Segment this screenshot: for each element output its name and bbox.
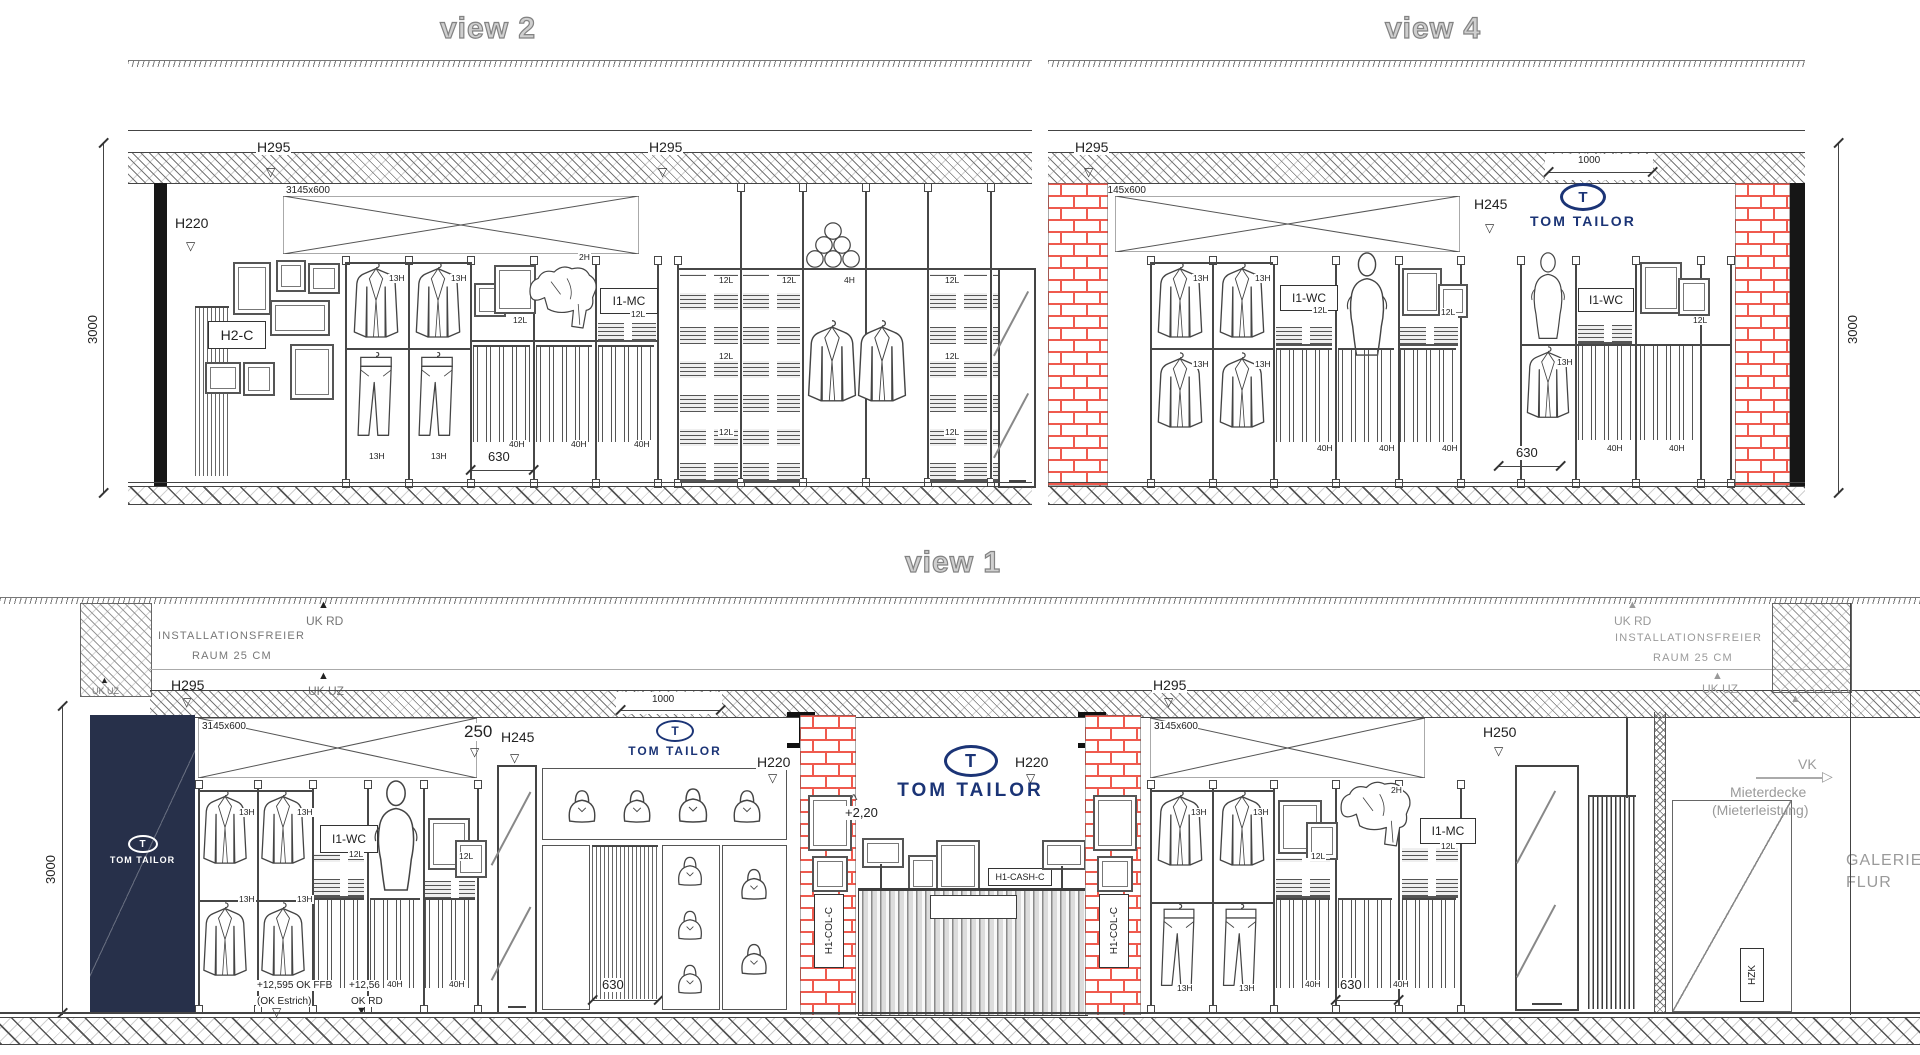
capacity-label: 40H [1441,444,1459,453]
dimension-line [1498,466,1560,467]
jacket-icon [258,790,308,868]
mannequin-icon [370,780,422,892]
triangle-marker-icon: ▽ [470,746,479,758]
annotation-uk-rd: UK RD [306,614,343,628]
jacket-icon [258,902,308,980]
picture-frame [812,856,848,892]
bag-column [722,845,787,1010]
logo-wordmark: TOM TAILOR [1530,213,1636,229]
gallery-wall-line [1850,603,1851,1015]
shelf-post [1150,258,1152,486]
mannequin-icon [1342,252,1392,357]
view4-floor-hatch [1048,486,1805,505]
shelf-post [1150,782,1152,1012]
fixture-tag: H1-CASH-C [988,868,1052,886]
folded-stacks [1402,848,1458,898]
annotation-installfree-1: INSTALLATIONSFREIER [158,630,305,643]
hanging-pants [1338,898,1392,988]
shelf-post [1730,258,1732,486]
triangle-marker-icon: ▲ [1790,694,1801,705]
handbag-icon [673,908,707,940]
logo-ellipse-t: T [656,720,694,742]
folded-stacks [314,854,364,898]
logo-ellipse-t: T [128,835,158,853]
height-label: H220 [1014,755,1049,770]
triangle-marker-icon: ▲ [1712,671,1723,682]
folded-stacks [425,878,475,900]
view4-slab-line [1048,130,1805,131]
shelf-post [477,782,479,1012]
capacity-label: 13H [1254,360,1272,369]
capacity-label: 40H [1304,980,1322,989]
panel-size-label: 3145x600 [1154,721,1198,732]
tom-tailor-logo: T TOM TAILOR [1530,183,1636,229]
handbag-icon [736,866,772,900]
rack-pole [1626,718,1628,798]
jacket-icon [200,790,250,868]
level-label-ffb: +12,595 OK FFB [256,980,333,991]
view1-floor-hatch [0,1017,1920,1045]
logo-ellipse-t: T [1560,183,1606,211]
tom-tailor-logo-white: T TOM TAILOR [100,835,185,865]
floor-line [1048,482,1805,483]
dimension-line [592,1000,658,1001]
view4-title: view 4 [1385,12,1481,46]
height-label: H245 [500,730,535,745]
picture-frame [936,840,980,892]
annotation-galerie: GALERIE [1846,852,1920,870]
jeans-icon [1158,904,1200,988]
capacity-label: 13H [1238,984,1256,993]
left-wall-hatch [80,603,152,697]
height-label: H295 [1152,678,1187,693]
hanging-pants [1402,898,1456,988]
capacity-label: 13H [1192,274,1210,283]
handbag-icon [618,787,656,823]
view1-title: view 1 [905,546,1001,580]
handbag-icon [673,785,713,823]
picture-frame [908,855,938,892]
handbag-icon [563,787,601,823]
capacity-label: 13H [1192,360,1210,369]
shelf-post [1575,258,1577,486]
gallery-door [1672,800,1792,1012]
annotation-uk-uz: UK UZ [92,686,119,697]
triangle-marker-icon: ▲ [1627,600,1638,611]
brick-wall [1048,183,1108,486]
shelf-post [367,782,369,1012]
handbag-icon [736,941,772,975]
draped-clothes-icon [1338,770,1413,855]
shelf-post [1212,258,1214,486]
dimension-label-3000: 3000 [1846,300,1860,360]
folded-stacks [1400,316,1458,346]
installation-zone-line [150,669,1850,670]
mannequin-icon [1524,252,1572,340]
view4-ceiling-hatch [1048,152,1805,184]
triangle-marker-icon: ▽ [510,752,519,764]
annotation-mieterdecke: Mieterdecke [1730,784,1806,801]
dimension-label-3000: 3000 [44,840,58,900]
capacity-label: 12L [1692,316,1708,325]
triangle-marker-icon: ▽ [1494,745,1503,757]
fixture-tag-vertical: H1-COL-C [814,894,844,968]
annotation-vk: VK [1798,756,1817,773]
jacket-icon [200,902,250,980]
dimension-label-630: 630 [1340,978,1362,992]
jacket-icon [1216,790,1268,870]
shelf-post [1335,782,1337,1012]
floor-line [0,1012,1920,1014]
annotation-installfree-1: INSTALLATIONSFREIER [1615,632,1762,645]
bag-column [662,845,720,1010]
height-label: H250 [1482,725,1517,740]
folded-stacks [1578,314,1632,344]
fixture-tag: I1-WC [1578,288,1634,312]
dimension-line [620,710,720,711]
hzk-text: HZK [1747,965,1758,985]
shelf-post [1212,782,1214,1012]
capacity-label: 13H [238,808,256,817]
hanging-pants [1578,344,1632,440]
picture-frame [1640,262,1682,314]
hanging-pants [314,898,364,988]
level-label-estrich: (OK Estrich) [256,996,312,1007]
fixture-tag-text: H1-COL-C [824,907,835,954]
capacity-label: 13H [296,808,314,817]
mirror-panel [1515,765,1579,1011]
brand-wall-panel: T TOM TAILOR [90,715,195,1013]
handbag-icon [728,787,766,823]
triangle-marker-icon: ▽ [768,772,777,784]
folded-stacks [1276,312,1332,346]
capacity-label: 12L [348,850,364,859]
capacity-label: 12L [458,852,474,861]
panel-size-label: 3145x600 [1102,185,1146,196]
capacity-label: 2H [1390,786,1403,795]
view1-panel: view 1 ▲ UK RD INSTALLATIONSFREIER RAUM … [0,540,1920,1055]
capacity-label: 13H [1252,808,1270,817]
dimension-label-1000: 1000 [652,694,674,705]
vk-arrow-line [1756,777,1822,779]
jacket-icon [1154,790,1206,870]
triangle-marker-icon: ▲ [100,676,109,685]
capacity-label: 40H [1378,444,1396,453]
picture-frame [808,795,852,851]
shelf-post [1273,258,1275,486]
logo-wordmark: TOM TAILOR [628,744,722,758]
capacity-label: 13H [1176,984,1194,993]
capacity-label: 13H [238,895,256,904]
sign-stem [880,864,882,888]
dimension-label-1000: 1000 [1578,155,1600,166]
counter-sign [1042,840,1086,870]
display-cell [542,845,590,1010]
height-label: H295 [1074,140,1109,155]
clothes-rack [1588,795,1636,1009]
capacity-label: 13H [1190,808,1208,817]
brick-wall [1735,183,1790,486]
hanging-pants [1640,344,1696,440]
triangle-marker-icon: ▽ [1485,222,1494,234]
shelf-post [1635,258,1637,486]
capacity-label: 13H [1254,274,1272,283]
capacity-label: 40H [1316,444,1334,453]
height-annotation: +2,20 [845,806,878,820]
hanging-pants [1338,348,1394,442]
logo-wordmark: TOM TAILOR [897,780,1043,802]
logo-wordmark: TOM TAILOR [110,855,175,865]
triangle-marker-icon: ▲ [318,600,329,611]
dimension-label-630: 630 [1516,446,1538,460]
annotation-mieterleistung: (Mieterleistung) [1712,802,1808,819]
dimension-line [1335,1000,1398,1001]
view4-panel: view 4 1000 H295 ▽ 3145x600 13H 13H 13 [0,0,1920,540]
capacity-label: 40H [1606,444,1624,453]
picture-frame [1097,856,1133,892]
triangle-marker-icon: ▽ [1026,772,1035,784]
annotation-uk-rd: UK RD [1614,614,1651,628]
hanging-pants [370,898,420,988]
level-label-rd: +12,56 [348,980,381,991]
capacity-label: 13H [296,895,314,904]
jeans-icon [1220,904,1262,988]
hanging-pants [1276,898,1330,988]
capacity-label: 12L [1310,852,1326,861]
picture-frame [1093,795,1137,851]
picture-frame [1678,278,1710,316]
hanging-pants [1400,348,1456,442]
partition-column [1654,712,1666,1012]
dimension-label-630: 630 [602,978,624,992]
wall-section-bar [1790,183,1805,486]
hzk-tag: HZK [1740,948,1764,1002]
bag-display-top [542,768,787,840]
right-wall-hatch [1772,603,1852,693]
dimension-line [62,705,63,1015]
picture-frame [1402,268,1442,316]
fixture-tag: I1-WC [1280,285,1338,311]
annotation-installfree-2: RAUM 25 CM [1653,652,1733,665]
shelf-post [1273,782,1275,1012]
elevation-drawing-sheet: view 2 H295 ▽ H295 ▽ 3145x600 3000 H220 … [0,0,1920,1055]
curtain-panel [592,845,658,999]
height-label: 250 [463,723,493,741]
tom-tailor-logo-small: T TOM TAILOR [610,720,740,758]
shelf-post [1460,782,1462,1012]
annotation-installfree-2: RAUM 25 CM [192,650,272,663]
capacity-label: 12L [1312,306,1328,315]
hanging-pants [425,898,475,988]
logo-ellipse-t: T [944,745,998,777]
dimension-line [1838,142,1839,494]
cash-desk-recess [930,895,1017,919]
sign-stem [1061,866,1063,888]
folded-stacks [1276,858,1330,898]
height-label: H245 [1473,197,1508,212]
capacity-label: 13H [1556,358,1574,367]
dimension-line [1548,172,1652,173]
hanging-pants [1276,348,1332,442]
view4-upper-ceiling-line [1048,60,1805,67]
triangle-marker-icon: ▽ [1084,166,1093,178]
triangle-marker-icon: ▲ [318,671,329,682]
capacity-label: 12L [1440,842,1456,851]
capacity-label: 40H [1392,980,1410,989]
annotation-uk-uz: UK UZ [1702,682,1738,696]
handbag-icon [673,854,707,886]
capacity-label: 12L [1440,308,1456,317]
annotation-flur: FLUR [1846,874,1892,892]
capacity-label: 40H [448,980,466,989]
hanging-rail [1150,348,1273,350]
height-label: H220 [756,755,791,770]
handbag-icon [673,962,707,994]
capacity-label: 40H [1668,444,1686,453]
xbrace-panel [1115,196,1460,252]
capacity-label: 40H [386,980,404,989]
arrow-right-icon: ▷ [1822,768,1833,785]
mirror-panel [497,765,537,1014]
fixture-tag-vertical: H1-COL-C [1099,894,1129,968]
counter-sign [862,838,904,868]
panel-size-label: 3145x600 [202,721,246,732]
triangle-marker-icon: ▽ [1164,696,1173,708]
fixture-tag-text: H1-COL-C [1109,907,1120,954]
